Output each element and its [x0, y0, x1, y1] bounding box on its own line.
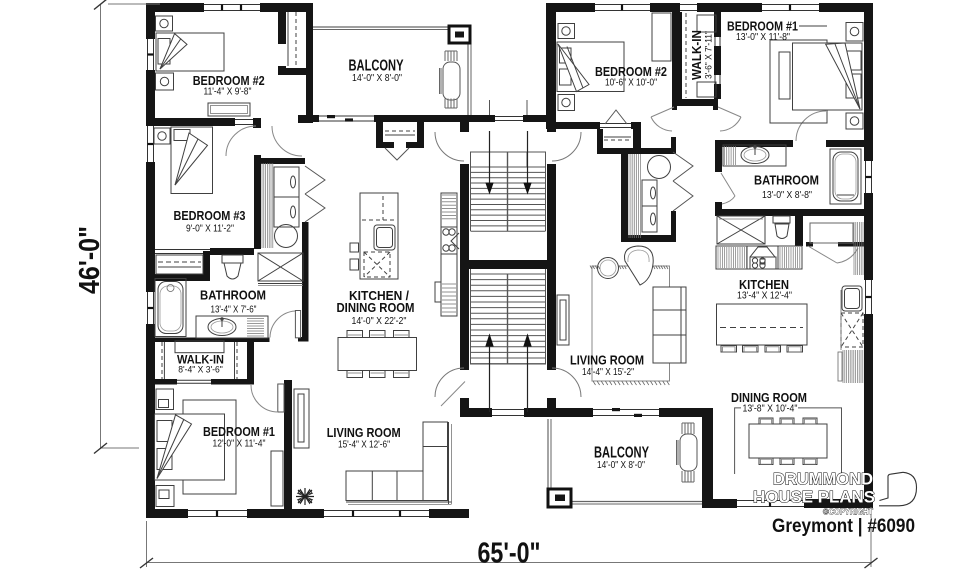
svg-text:13'-8" X 10'-4": 13'-8" X 10'-4": [743, 403, 798, 415]
svg-text:46'-0": 46'-0": [74, 226, 106, 294]
svg-text:14'-0" X 8'-0": 14'-0" X 8'-0": [352, 72, 402, 84]
svg-text:14'-0" X 8'-0": 14'-0" X 8'-0": [597, 459, 645, 471]
svg-text:12'-0" X 11'-4": 12'-0" X 11'-4": [213, 438, 266, 450]
svg-text:15'-4" X 12'-6": 15'-4" X 12'-6": [338, 439, 390, 451]
svg-text:3'-6" X 7'-11": 3'-6" X 7'-11": [704, 31, 715, 79]
svg-text:8'-4" X 3'-6": 8'-4" X 3'-6": [178, 364, 223, 375]
svg-text:13'-0" X 8'-8": 13'-0" X 8'-8": [762, 189, 812, 201]
svg-text:13'-4" X 7'-6": 13'-4" X 7'-6": [211, 304, 257, 316]
svg-text:10'-6" X 10'-0": 10'-6" X 10'-0": [605, 77, 657, 89]
svg-text:HOUSE PLANS: HOUSE PLANS: [753, 488, 875, 506]
svg-text:BATHROOM: BATHROOM: [200, 288, 266, 303]
svg-text:13'-0" X 11'-8": 13'-0" X 11'-8": [736, 31, 790, 43]
svg-text:14'-0" X 22'-2": 14'-0" X 22'-2": [352, 315, 407, 327]
svg-text:©COPYRIGHT: ©COPYRIGHT: [823, 507, 874, 517]
svg-text:Greymont | #6090: Greymont | #6090: [772, 516, 915, 537]
svg-text:11'-4" X 9'-8": 11'-4" X 9'-8": [204, 86, 252, 98]
svg-text:BATHROOM: BATHROOM: [754, 173, 819, 188]
svg-text:65'-0": 65'-0": [478, 538, 541, 569]
svg-text:14'-4" X 15'-2": 14'-4" X 15'-2": [582, 366, 634, 378]
svg-text:DRUMMOND: DRUMMOND: [773, 471, 873, 489]
svg-text:BEDROOM #3: BEDROOM #3: [174, 208, 246, 223]
svg-text:DINING ROOM: DINING ROOM: [337, 300, 415, 315]
svg-text:13'-4" X 12'-4": 13'-4" X 12'-4": [737, 290, 792, 302]
svg-text:9'-0" X 11'-2": 9'-0" X 11'-2": [186, 223, 234, 235]
svg-text:WALK-IN: WALK-IN: [689, 30, 704, 80]
